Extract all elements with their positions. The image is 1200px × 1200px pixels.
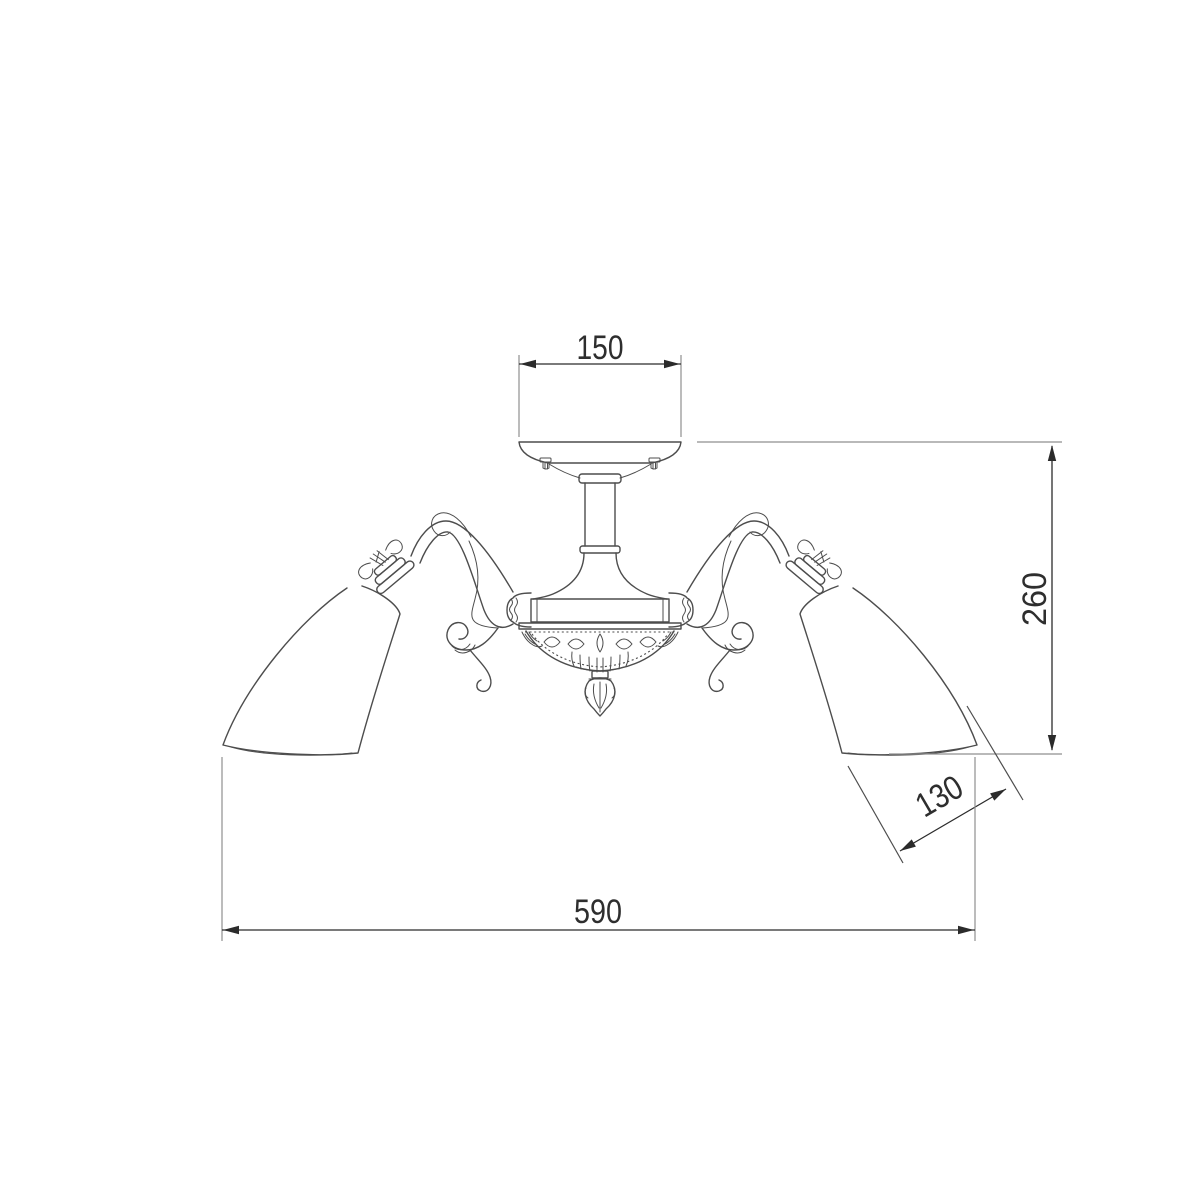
extension-line-lower: [848, 766, 903, 863]
dimension-label-150: 150: [577, 329, 624, 367]
hub-flange: [519, 623, 681, 629]
canopy-outline: [519, 442, 681, 463]
drawing-page: 150 260 130 590: [0, 0, 1200, 1200]
arrowhead-right: [958, 926, 974, 934]
arm-scroll: [447, 541, 498, 691]
stem-collar: [579, 474, 621, 483]
arrowhead-up: [1048, 445, 1056, 461]
stem-trumpet: [533, 553, 667, 599]
shade-socket: [355, 536, 418, 597]
finial-neck: [592, 671, 608, 678]
socket-horn-right: [384, 537, 405, 558]
finial-veins: [585, 682, 615, 712]
arrowhead-right: [664, 360, 680, 368]
canopy-screw-left: [540, 458, 551, 469]
center-stem: [533, 474, 667, 599]
arrowhead-down: [1048, 735, 1056, 751]
dimension-label-130: 130: [909, 768, 970, 825]
arrowhead-left: [223, 926, 239, 934]
hub-band-caps: [537, 599, 663, 622]
arrowhead-left: [520, 360, 536, 368]
bowl-stipple-band: [532, 634, 668, 667]
arm-tube: [411, 521, 513, 627]
glass-shade: [223, 586, 400, 755]
right-arm-and-shade: [669, 513, 977, 755]
hub-band-body: [531, 599, 669, 622]
ornate-bowl: [526, 631, 674, 672]
chandelier-fixture: [223, 442, 977, 755]
bowl-leaf-motifs: [544, 634, 656, 652]
ceiling-canopy: [519, 442, 681, 478]
dimension-label-260: 260: [1016, 572, 1054, 626]
dimension-overall-width: 590: [222, 757, 975, 941]
arrowhead-upper: [990, 789, 1006, 801]
canopy-screw-right: [649, 458, 660, 469]
extension-lines: [519, 355, 681, 437]
dimension-fixture-height: 260: [697, 442, 1062, 754]
stem-tube: [585, 483, 615, 546]
left-arm-and-shade: [223, 513, 531, 755]
stem-ring: [580, 546, 620, 553]
chandelier-dimension-drawing: 150 260 130 590: [0, 0, 1200, 1200]
dimension-label-590: 590: [574, 893, 622, 931]
dimension-shade-diameter: 130: [848, 706, 1023, 863]
arrowhead-lower: [900, 839, 916, 851]
canopy-underside: [549, 464, 651, 478]
hub-band: [519, 599, 681, 647]
dimension-canopy-width: 150: [519, 329, 681, 437]
arm-knuckle: [507, 593, 531, 627]
finial: [585, 671, 615, 716]
bowl-outline: [526, 631, 674, 671]
